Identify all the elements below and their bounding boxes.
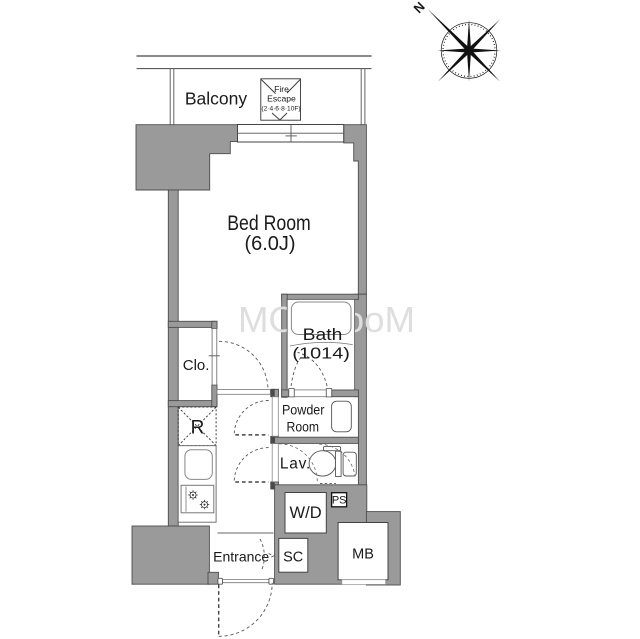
- svg-text:Lav.: Lav.: [280, 456, 311, 473]
- svg-text:Escape: Escape: [267, 93, 296, 103]
- svg-text:Bath: Bath: [303, 326, 343, 344]
- svg-text:Clo.: Clo.: [183, 357, 210, 374]
- svg-text:Entrance: Entrance: [213, 549, 269, 565]
- svg-text:Balcony: Balcony: [185, 89, 248, 109]
- svg-text:(2·4·6·8·10F): (2·4·6·8·10F): [261, 106, 300, 113]
- svg-text:PS: PS: [332, 494, 347, 506]
- svg-text:Bed Room: Bed Room: [227, 212, 311, 235]
- svg-text:SC: SC: [283, 550, 303, 566]
- svg-text:W/D: W/D: [290, 504, 322, 522]
- svg-text:MB: MB: [352, 547, 374, 563]
- svg-text:(6.0J): (6.0J): [245, 233, 296, 255]
- svg-text:(1014): (1014): [292, 346, 350, 363]
- svg-text:Room: Room: [287, 419, 320, 435]
- svg-text:R: R: [191, 418, 205, 439]
- svg-text:Powder: Powder: [282, 402, 325, 418]
